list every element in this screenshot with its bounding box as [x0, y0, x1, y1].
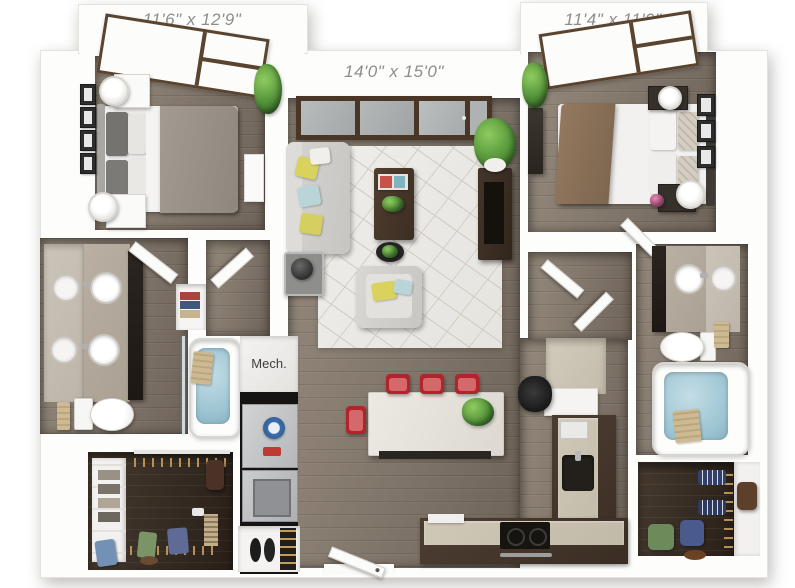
wall-art-frame [80, 153, 96, 174]
hanging-shirt-navy [698, 470, 726, 485]
bathroom-sink [88, 334, 120, 366]
sofa-pillow-blue [296, 184, 321, 208]
small-appliance [560, 421, 588, 439]
bathroom1-mirror-reflection [44, 244, 84, 402]
wall-art-frame [80, 107, 96, 128]
office-chair [518, 376, 552, 412]
dining-chair [420, 374, 444, 394]
wall-art-frame [697, 94, 715, 116]
hanging-shirt-navy [698, 500, 726, 515]
bed1-duvet [160, 106, 238, 213]
bed2-lamp [658, 86, 682, 110]
heater-gauge [263, 417, 285, 439]
bed1-lamp [88, 192, 118, 222]
bedroom2-dresser [528, 108, 543, 174]
door-handle [462, 116, 466, 120]
armchair-pillow-blue [393, 279, 413, 296]
dining-chair [386, 374, 410, 394]
black-shoe [250, 538, 261, 562]
water-heater [242, 404, 298, 468]
bathroom-sink [90, 272, 122, 304]
window-mullion [198, 57, 262, 71]
cooktop-burner [507, 528, 525, 546]
toilet-bowl [90, 398, 134, 431]
wall-art-frame [697, 120, 715, 142]
bathroom-sink [674, 264, 704, 294]
dining-chair [346, 406, 366, 434]
hanging-item-blue [680, 520, 704, 546]
mech-room: Mech. [240, 336, 298, 392]
folded-clothes [98, 470, 120, 480]
magazine-art [394, 176, 405, 188]
linen-nook [176, 284, 206, 330]
folded-clothes [98, 484, 120, 494]
towel-rack [714, 322, 729, 348]
mech-room-label: Mech. [251, 356, 286, 371]
counter-towel [428, 514, 464, 523]
linen-stack [180, 310, 200, 318]
handbag [737, 482, 757, 510]
cooktop [500, 522, 550, 549]
bathroom1-vanity-counter [84, 244, 130, 402]
bath-mat [672, 409, 701, 444]
kitchen-sink [562, 455, 594, 491]
tv-screen [484, 182, 504, 244]
entry-shoe-cubby [238, 526, 300, 572]
shoe [684, 550, 706, 560]
bed2-pillow [650, 110, 676, 150]
bed1-pillow [128, 158, 146, 198]
sink-faucet [575, 451, 581, 461]
linen-stack [180, 292, 200, 300]
shoes-white [192, 508, 204, 516]
sink-faucet [700, 273, 708, 278]
hanging-shirt-green [137, 531, 158, 559]
sofa-pillow-yellow [299, 213, 324, 236]
cooktop-burner [529, 528, 547, 546]
sofa-pillow-white [309, 147, 331, 165]
mirror-sink-reflection [52, 274, 80, 302]
built-in-desk [544, 388, 598, 416]
folded-clothes [98, 512, 120, 522]
succulent [382, 245, 398, 258]
magazine [378, 174, 408, 190]
potted-plant [254, 64, 282, 114]
shoe-rack [204, 514, 218, 546]
potted-plant [522, 62, 548, 108]
bed2-lamp [676, 180, 705, 209]
shower-glass [182, 336, 185, 434]
towel-rack [57, 402, 70, 430]
wall-art-frame [80, 84, 96, 105]
hanging-shirt-blue [167, 527, 189, 555]
wall-art-frame [697, 146, 715, 168]
sink-faucet [83, 282, 91, 287]
plant-pot [484, 158, 506, 172]
mirror-sink-reflection [50, 336, 78, 364]
desk-nook-floor [546, 338, 606, 394]
bed1-pillow [106, 112, 128, 156]
island-plant [462, 398, 494, 426]
folded-clothes [98, 498, 120, 508]
washer [242, 470, 298, 522]
door-handle [375, 568, 380, 573]
window-mullion [632, 35, 692, 48]
magazine-art [380, 176, 392, 188]
flower-vase-pink [650, 194, 664, 207]
heater-valve-red [263, 447, 281, 456]
hanging-jeans [94, 539, 117, 568]
closet-door-track [134, 450, 230, 454]
oven-handle [500, 553, 552, 557]
table-flowers [382, 196, 404, 212]
black-shoe [264, 538, 275, 562]
bathroom2-vanity-cabinet [652, 246, 667, 332]
linen-stack [180, 301, 200, 309]
coffee-table [374, 168, 414, 240]
shoe [140, 556, 158, 565]
cubby-shelf [280, 528, 296, 570]
bath-towel [190, 351, 213, 385]
wall-art-frame [80, 130, 96, 151]
bathroom1-vanity-cabinet [128, 250, 143, 400]
tv-console [478, 168, 512, 260]
bed1-lamp [99, 76, 129, 106]
floor-plan-canvas: 11'6" x 12'9" 11'4" x 11'9" 14'0" x 15'0… [0, 0, 795, 588]
toilet-bowl [660, 332, 704, 362]
dining-chair [455, 374, 479, 394]
apartment-render: 11'6" x 12'9" 11'4" x 11'9" 14'0" x 15'0… [0, 0, 795, 588]
balcony-door-pane [419, 101, 465, 135]
balcony-door-pane [301, 101, 355, 135]
mirror-sink-reflection [710, 265, 737, 292]
island-base [379, 451, 491, 459]
handbag [206, 460, 224, 490]
washer-door [253, 479, 291, 517]
bed2-accent-pillow [678, 112, 698, 150]
bed2-throw-blanket [555, 104, 616, 204]
balcony-doors [296, 96, 492, 140]
sink-faucet [81, 344, 89, 349]
bed1-pillow [128, 114, 146, 154]
balcony-door-pane [360, 101, 414, 135]
hanging-item-green [648, 524, 674, 550]
table-lamp [291, 258, 313, 280]
living-room-dimensions-label: 14'0" x 15'0" [296, 62, 492, 82]
bedroom1-dresser [244, 154, 264, 202]
